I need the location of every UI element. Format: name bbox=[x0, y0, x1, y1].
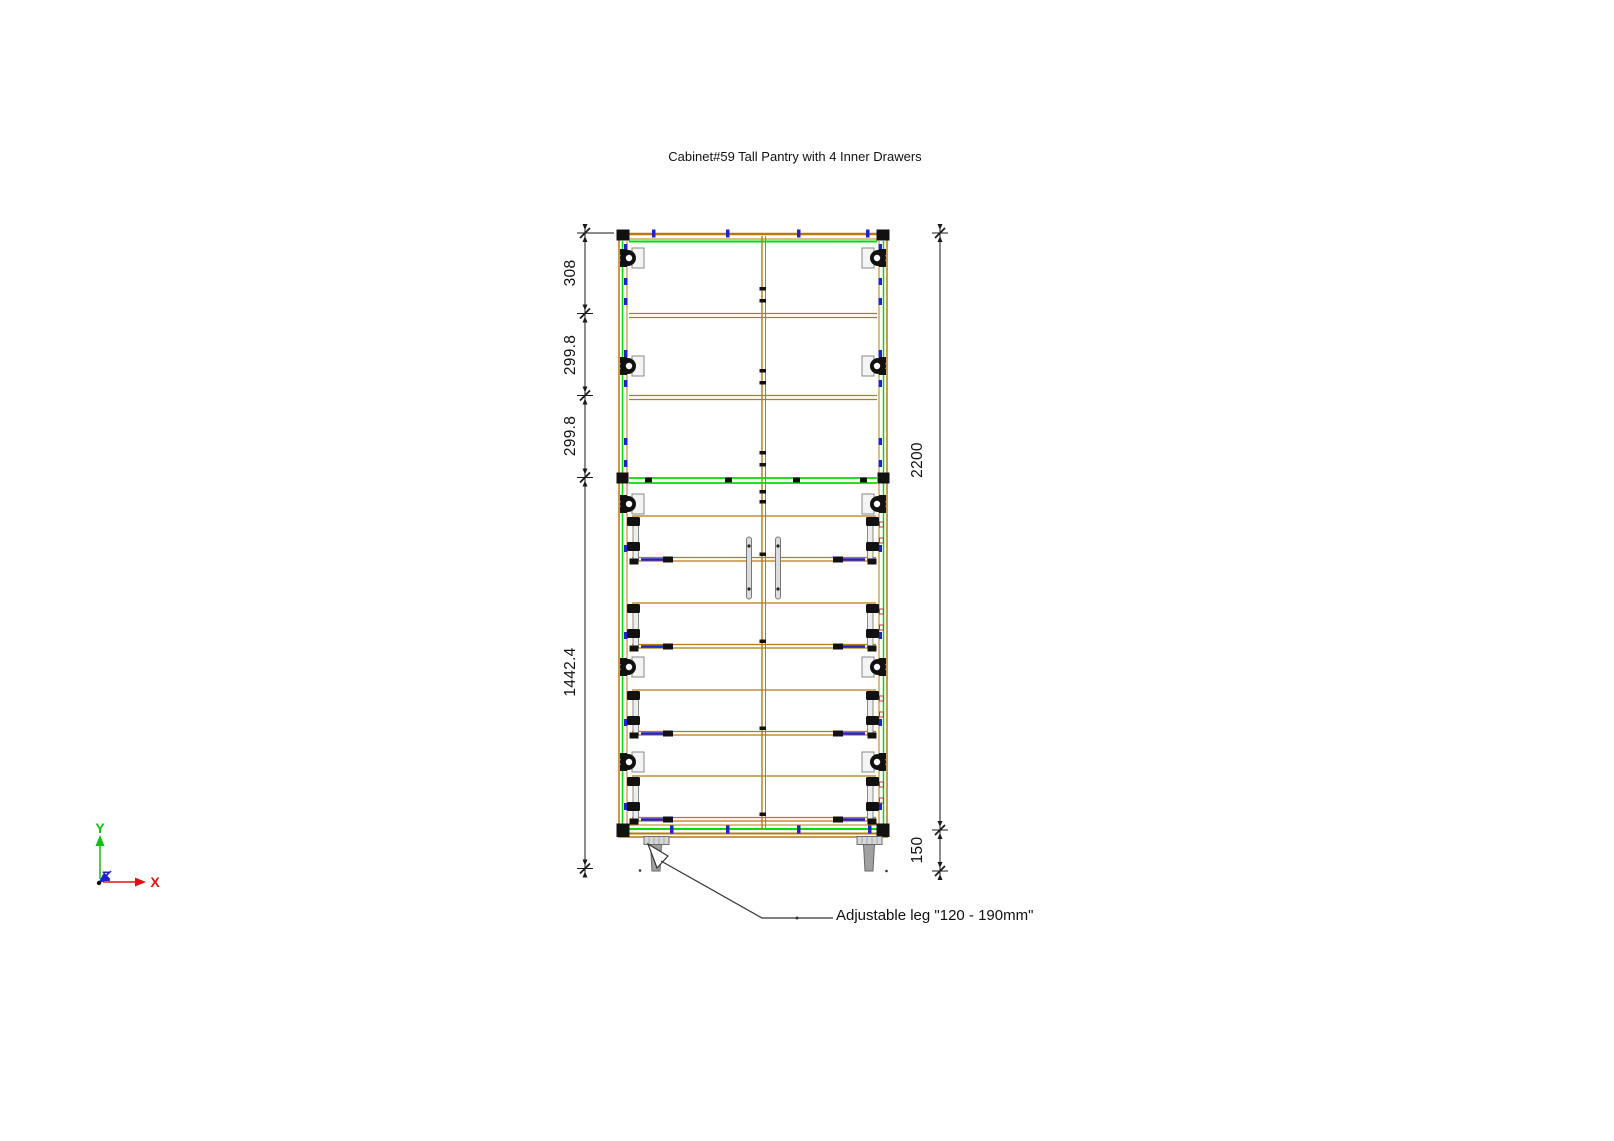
axis-x-label: X bbox=[150, 874, 159, 890]
floor-point-left bbox=[639, 869, 642, 872]
drawer-3 bbox=[627, 690, 884, 739]
hinges bbox=[620, 248, 886, 772]
dimension-label: 308 bbox=[562, 260, 580, 287]
corner-blocks bbox=[617, 230, 890, 838]
bottom-panel bbox=[618, 825, 888, 837]
dimension-label: 299.8 bbox=[562, 335, 580, 375]
adjustable-leg-right bbox=[857, 837, 882, 872]
fixed-shelf bbox=[629, 478, 877, 484]
dimension-label: 1442.4 bbox=[562, 647, 580, 696]
drawer-4 bbox=[627, 776, 884, 825]
leader-line bbox=[648, 844, 833, 920]
shelf-1 bbox=[629, 314, 877, 318]
drawer-1 bbox=[627, 516, 884, 565]
axis-y-label: Y bbox=[95, 820, 104, 836]
center-stile bbox=[760, 236, 767, 829]
side-panel-right bbox=[879, 233, 887, 837]
shelf-2 bbox=[629, 396, 877, 400]
dimension-label: 299.8 bbox=[562, 416, 580, 456]
cabinet-carcass bbox=[617, 230, 890, 873]
panel-fasteners bbox=[624, 244, 882, 810]
dimension-label: 150 bbox=[909, 837, 927, 864]
cad-sheet: Cabinet#59 Tall Pantry with 4 Inner Draw… bbox=[0, 0, 1614, 1141]
side-panel-left bbox=[619, 233, 627, 837]
floor-point-right bbox=[885, 870, 888, 873]
axis-z-label: Z bbox=[102, 868, 111, 884]
drawing-canvas[interactable] bbox=[0, 0, 1614, 1141]
leg-annotation-label: Adjustable leg "120 - 190mm" bbox=[836, 907, 1033, 924]
dimension-line-right bbox=[932, 224, 948, 880]
drawing-title: Cabinet#59 Tall Pantry with 4 Inner Draw… bbox=[600, 149, 990, 164]
dimension-line-left bbox=[577, 224, 614, 878]
door-handle-right bbox=[776, 537, 781, 599]
axis-origin bbox=[97, 881, 101, 885]
door-handle-left bbox=[747, 537, 752, 599]
drawer-2 bbox=[627, 603, 884, 652]
top-panel bbox=[618, 230, 888, 242]
dimension-label: 2200 bbox=[909, 442, 927, 478]
inner-drawers bbox=[627, 516, 884, 825]
